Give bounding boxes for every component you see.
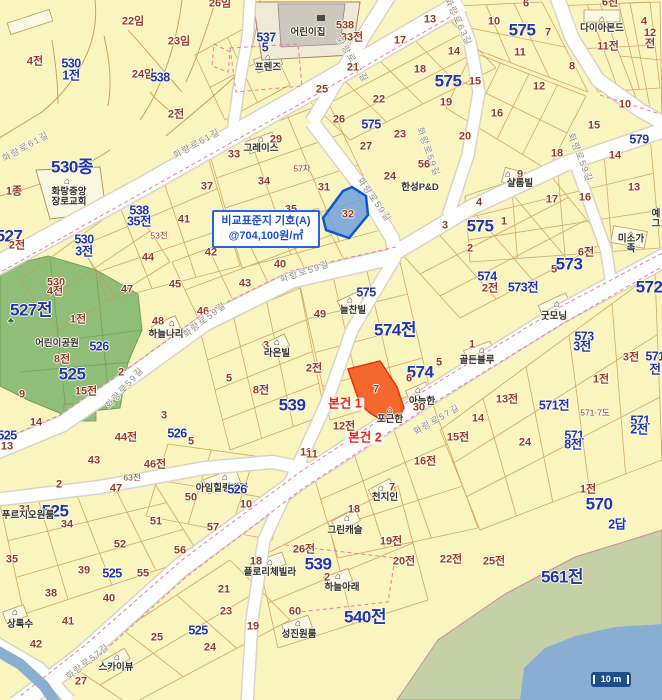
parcel-number-label: 31: [19, 504, 31, 515]
building-label: 어린이집: [291, 28, 326, 38]
parcel-number-label: 7: [389, 482, 395, 493]
district-number-label: 526: [89, 341, 108, 354]
parcel-number-label: 1종: [6, 186, 22, 197]
parcel-number-label: 1전: [593, 374, 609, 385]
parcel-number-label: 13: [628, 182, 640, 193]
parcel-number-label: 49: [314, 309, 326, 320]
parcel-number-label: 42: [30, 639, 42, 650]
parcel-number-label: 5: [551, 264, 557, 275]
parcel-number-label: 60: [289, 606, 301, 617]
district-number-label: 574: [407, 363, 434, 380]
parcel-number-label: 11: [306, 449, 318, 460]
parcel-number-label: 25: [316, 84, 328, 95]
parcel-number-label: 50: [185, 492, 197, 503]
building-icon: ⌂: [64, 177, 70, 187]
district-number-label: 530: [61, 58, 80, 71]
parcel-number-label: 19전: [380, 536, 402, 547]
road-name-label: 화랑로61길: [1, 130, 51, 163]
building-icon: ⌂: [274, 338, 280, 348]
parcel-number-label: 13: [1, 441, 13, 452]
district-number-label: 571: [630, 415, 649, 428]
parcel-number-label: 5: [188, 436, 194, 447]
road-name-label: 화랑로59길: [182, 300, 229, 339]
parcel-number-label: 21: [347, 62, 359, 73]
parcel-number-label: 33전: [341, 32, 363, 43]
labels-layer: 26임22임23임4전5301전24임5382전5375⌂프렌즈어린이집5383…: [0, 0, 662, 700]
building-icon: ⌂: [479, 346, 485, 356]
parcel-number-label: 14: [448, 46, 460, 57]
building-icon: ⌂: [335, 572, 341, 582]
parcel-number-label: 51: [150, 516, 162, 527]
parcel-number-label: 25전: [483, 556, 505, 567]
parcel-number-label: 41: [178, 214, 190, 225]
subject-parcel-label: 본건 2: [345, 432, 384, 445]
building-icon: ⌂: [169, 319, 175, 329]
parcel-number-label: 5: [226, 373, 232, 384]
district-number-label: 3전: [75, 246, 92, 259]
district-number-label: 35전: [127, 216, 151, 229]
parcel-number-label: 31: [318, 182, 330, 193]
parcel-number-label: 56: [174, 545, 186, 556]
scale-bar: 10 m: [591, 672, 631, 687]
parcel-number-label: 53전: [150, 232, 167, 241]
road-name-label: 화랑로61길: [334, 35, 369, 84]
parcel-number-label: 10: [240, 499, 252, 510]
parcel-number-label: 32: [342, 209, 354, 220]
building-label: 상록수: [7, 620, 33, 630]
parcel-number-label: 4: [641, 16, 647, 27]
building-icon: ⌂: [599, 15, 605, 25]
building-icon: ⌂: [347, 296, 353, 306]
reference-price-box: 비교표준지 기호(A) @704,100원/㎡: [212, 210, 320, 248]
district-number-label: 5: [262, 42, 268, 55]
parcel-number-label: 26: [333, 114, 345, 125]
building-icon: ⌂: [12, 608, 18, 618]
parcel-number-label: 30: [413, 402, 425, 413]
reference-price-title: 비교표준지 기호(A): [221, 214, 310, 229]
parcel-number-label: 47: [110, 483, 122, 494]
parcel-number-label: 14: [609, 150, 621, 161]
district-number-label: 526: [167, 428, 186, 441]
district-number-label: 3전: [573, 341, 590, 354]
parcel-number-label: 15전: [75, 386, 97, 397]
district-number-label: 573: [556, 255, 583, 272]
building-icon: ⌂: [222, 473, 228, 483]
parcel-number-label: 47: [121, 284, 133, 295]
parcel-number-label: 7: [373, 384, 379, 395]
parcel-number-label: 27: [75, 676, 87, 687]
parcel-number-label: 23임: [168, 36, 190, 47]
district-number-label: 571: [564, 430, 583, 443]
building-icon: ⌂: [267, 558, 273, 568]
district-number-label: 1전: [62, 70, 79, 83]
district-number-label: 8전: [564, 439, 581, 452]
parcel-number-label: 25: [151, 632, 163, 643]
district-number-label: 527전: [10, 301, 52, 318]
parcel-number-label: 6전: [578, 247, 594, 258]
parcel-number-label: 19: [440, 97, 452, 108]
subject-parcel-label: 본건 1: [325, 398, 364, 411]
district-number-label: 537: [256, 32, 275, 45]
parcel-number-label: 14: [30, 417, 42, 428]
parcel-number-label: 52: [114, 539, 126, 550]
parcel-number-label: 22임: [122, 16, 144, 27]
parcel-number-label: 45: [169, 279, 181, 290]
parcel-number-label: 11: [300, 447, 312, 458]
parcel-number-label: 29: [270, 134, 282, 145]
district-number-label: 571전: [539, 400, 569, 413]
district-number-label: 525: [42, 502, 69, 519]
parcel-number-label: 4: [476, 197, 482, 208]
parcel-number-label: 46전: [144, 459, 166, 470]
parcel-number-label: 4전: [27, 56, 43, 67]
parcel-number-label: 2: [56, 479, 62, 490]
parcel-number-label: 2: [467, 243, 473, 254]
parcel-number-label: 26전: [293, 544, 315, 555]
parcel-number-label: 12전: [644, 28, 656, 50]
building-icon: ⌂: [258, 135, 264, 145]
building-icon: ⌂: [505, 170, 511, 180]
parcel-number-label: 22전: [440, 554, 462, 565]
parcel-number-label: 8전: [54, 354, 70, 365]
district-number-label: 579: [629, 134, 648, 147]
parcel-number-label: 538: [336, 20, 354, 31]
district-number-label: 575: [509, 21, 536, 38]
district-number-label: 538: [150, 72, 169, 85]
parcel-number-label: 3: [263, 340, 269, 351]
road-name-label: 화랑로57길: [65, 642, 112, 681]
district-number-label: 574: [477, 271, 496, 284]
parcel-number-label: 18: [250, 556, 262, 567]
parcel-number-label: 11전: [597, 41, 619, 52]
parcel-number-label: 16: [579, 192, 591, 203]
parcel-number-label: 19: [247, 621, 259, 632]
parcel-number-label: 27: [360, 141, 372, 152]
building-label: 아임힐링빌라: [196, 484, 248, 494]
district-number-label: 530종: [51, 158, 93, 175]
district-number-label: 525: [102, 568, 121, 581]
parcel-number-label: 57차: [293, 165, 310, 174]
road-name-label: 화랑로59길: [279, 260, 331, 285]
parcel-number-label: 48: [152, 316, 164, 327]
scale-label: 10 m: [601, 672, 622, 687]
parcel-number-label: 38: [45, 588, 57, 599]
parcel-number-label: 44: [142, 252, 154, 263]
parcel-number-label: 43: [88, 455, 100, 466]
parcel-number-label: 8: [569, 61, 575, 72]
district-number-label: 540전: [344, 608, 386, 625]
parcel-number-label: 24: [204, 642, 216, 653]
building-icon: ⌂: [344, 514, 350, 524]
parcel-number-label: 10: [488, 16, 500, 27]
road-name-label: 화랑로59길: [415, 126, 441, 178]
district-number-label: 2전: [630, 424, 647, 437]
parcel-number-label: 57: [207, 522, 219, 533]
parcel-number-label: 2전: [306, 363, 322, 374]
road-name-label: 화랑로59길: [104, 366, 146, 411]
parcel-number-label: 15: [469, 76, 481, 87]
building-label: 스카이뷰: [99, 663, 134, 673]
district-number-label: 575: [435, 72, 462, 89]
building-icon: ⌂: [295, 619, 301, 629]
parcel-number-label: 5: [436, 357, 442, 368]
building-label: 플로리체빌라: [244, 568, 296, 578]
map-viewport[interactable]: 26임22임23임4전5301전24임5382전5375⌂프렌즈어린이집5383…: [0, 0, 662, 700]
district-number-label: 526: [227, 484, 246, 497]
building-label: 프렌즈: [255, 63, 281, 73]
parcel-number-label: 23: [220, 606, 232, 617]
parcel-number-label: 15전: [447, 432, 469, 443]
parcel-number-label: 17: [394, 35, 406, 46]
parcel-number-label: 33: [228, 149, 240, 160]
road-name-label: 화랑로59길: [566, 132, 594, 184]
parcel-number-label: 43: [239, 278, 251, 289]
parcel-number-label: 39: [78, 565, 90, 576]
parcel-number-label: 3전: [623, 352, 639, 363]
parcel-number-label: 13전: [496, 394, 518, 405]
parcel-number-label: 42: [205, 247, 217, 258]
building-label: 푸르지오원룸: [2, 511, 54, 521]
building-icon: ⌂: [628, 230, 634, 240]
parcel-number-label: 571·7도: [580, 409, 610, 418]
building-label: 어린이공원: [35, 339, 79, 349]
district-number-label: 570: [586, 495, 613, 512]
parcel-number-label: 20전: [393, 556, 415, 567]
parcel-number-label: 40: [274, 259, 286, 270]
scale-tick-right: [627, 675, 629, 684]
parcel-number-label: 9: [517, 169, 523, 180]
building-icon: ⌂: [415, 386, 421, 396]
district-number-label: 574전: [374, 321, 416, 338]
reference-price-value: @704,100원/㎡: [229, 229, 304, 244]
parcel-number-label: 21: [218, 584, 230, 595]
parcel-number-label: 24: [384, 171, 396, 182]
parcel-number-label: 16전: [414, 456, 436, 467]
parcel-number-label: 15: [588, 120, 600, 131]
district-number-label: 530: [74, 234, 93, 247]
scale-tick-left: [593, 675, 595, 684]
parcel-number-label: 7: [545, 27, 551, 38]
parcel-number-label: 41: [62, 616, 74, 627]
parcel-number-label: 40: [103, 593, 115, 604]
parcel-number-label: 14: [472, 413, 484, 424]
district-number-label: 572: [636, 278, 662, 295]
parcel-number-label: 2전: [9, 240, 25, 251]
district-number-label: 527: [0, 227, 22, 244]
building-label: 라온빌: [264, 349, 290, 359]
district-number-label: 571전: [645, 350, 662, 376]
district-number-label: 575: [361, 119, 380, 132]
district-number-label: 525: [188, 625, 207, 638]
parcel-number-label: 2전: [168, 109, 184, 120]
parcel-number-label: 44전: [115, 432, 137, 443]
building-label: 한성P&D: [401, 183, 439, 193]
parcel-number-label: 63전: [123, 474, 140, 483]
parcel-number-label: 24: [519, 437, 531, 448]
parcel-number-label: 34: [61, 519, 73, 530]
district-number-label: 575: [467, 217, 494, 234]
parcel-number-label: 10: [619, 99, 631, 110]
parcel-number-label: 2: [324, 572, 330, 583]
district-number-label: 538: [129, 205, 148, 218]
district-number-label: 539: [279, 396, 306, 413]
building-label: 샬롬빌: [507, 179, 533, 189]
building-icon: ⌂: [554, 300, 560, 310]
parcel-number-label: 13: [424, 14, 436, 25]
road-name-label: 화랑로63길: [443, 0, 473, 48]
parcel-number-label: 35: [6, 554, 18, 565]
parcel-number-label: 2: [118, 367, 124, 378]
parcel-number-label: 22: [373, 94, 385, 105]
road-name-label: 화랑로59길: [355, 176, 392, 224]
parcel-number-label: 6: [523, 0, 529, 10]
building-label: 천지인: [372, 493, 398, 503]
parcel-number-label: 18: [551, 148, 563, 159]
parcel-number-label: 37: [201, 181, 213, 192]
parcel-number-label: 1: [501, 216, 507, 227]
road-name-label: 화랑로57길: [412, 403, 462, 437]
parcel-number-label: 20: [459, 131, 471, 142]
district-number-label: 575: [356, 287, 375, 300]
parcel-number-label: 56: [418, 159, 430, 170]
building-icon: ⌂: [387, 406, 393, 416]
district-number-label: 525: [59, 365, 86, 382]
parcel-number-label: 26임: [209, 0, 231, 10]
parcel-number-label: 24임: [132, 69, 154, 80]
building-label: 포근한: [377, 415, 403, 425]
building-icon: ⌂: [114, 653, 120, 663]
parcel-number-label: 12: [533, 81, 545, 92]
parcel-number-label: 3: [442, 220, 448, 231]
parcel-number-label: 11: [514, 47, 526, 58]
parcel-number-label: 530: [47, 277, 65, 288]
parcel-number-label: 17: [546, 194, 558, 205]
district-number-label: 525: [0, 430, 17, 443]
parcel-number-label: 55: [137, 568, 149, 579]
parcel-number-label: 23: [394, 129, 406, 140]
building-label: 늘찬빌: [340, 306, 366, 316]
parcel-number-label: 4전: [47, 286, 63, 297]
parcel-number-label: 6: [406, 373, 412, 384]
building-label: 골든블루: [460, 356, 495, 366]
building-label: 예그: [652, 209, 661, 228]
district-number-label: 561전: [541, 568, 583, 585]
district-number-label: 539: [305, 555, 332, 572]
building-label: 미소가족: [616, 234, 647, 253]
building-label: 하늘아래: [325, 583, 360, 593]
building-icon: ⌂: [265, 53, 271, 63]
building-icon: ⌂: [654, 205, 660, 215]
parcel-number-label: 1전: [580, 484, 596, 495]
building-label: 다이아몬드: [580, 24, 624, 34]
parcel-number-label: 12전: [333, 421, 355, 432]
building-icon: ⌂: [378, 484, 384, 494]
parcel-number-label: 34: [258, 176, 270, 187]
road-name-label: 화랑로61길: [172, 127, 222, 160]
park-icon: ♣: [8, 316, 14, 325]
parcel-number-label: 46: [197, 306, 209, 317]
building-label: 굿모닝: [541, 312, 567, 322]
parcel-number-label: 9: [19, 389, 25, 400]
parcel-number-label: 1전: [70, 314, 86, 325]
building-label: 그레이스: [244, 144, 279, 154]
building-label: 아늑한: [409, 397, 435, 407]
building-label: 하늘나리: [149, 330, 184, 340]
parcel-number-label: 6전: [602, 0, 618, 9]
district-number-label: 573: [574, 331, 593, 344]
district-number-label: 573전: [508, 282, 538, 295]
parcel-number-label: 18: [414, 64, 426, 75]
parcel-number-label: 16: [491, 108, 503, 119]
parcel-number-label: 1: [469, 339, 475, 350]
parcel-number-label: 3: [161, 410, 167, 421]
parcel-number-label: 2전: [482, 283, 498, 294]
parcel-number-label: 18: [348, 504, 360, 515]
building-label: 화랑중앙 장로교회: [52, 187, 87, 206]
building-label: 성진원룸: [282, 630, 317, 640]
district-number-label: 2답: [608, 519, 625, 532]
parcel-number-label: 8전: [253, 385, 269, 396]
building-label: 그린캐슬: [328, 526, 363, 536]
